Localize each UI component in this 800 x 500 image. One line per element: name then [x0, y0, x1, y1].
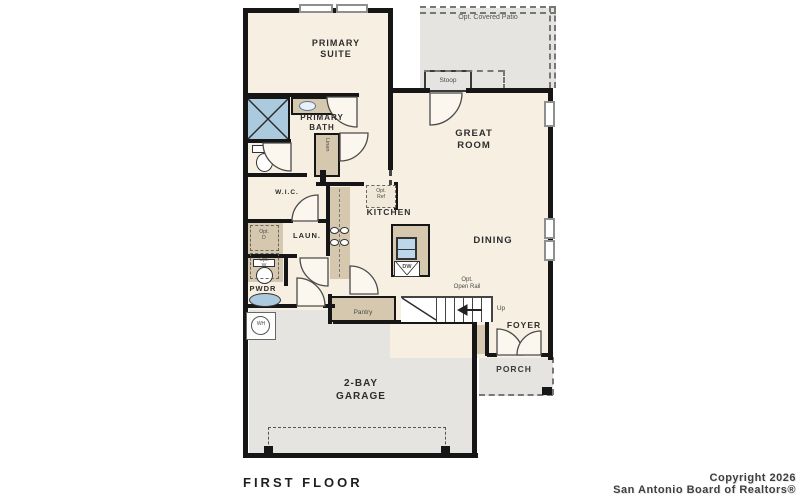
- stoop-label: Stoop: [440, 77, 457, 84]
- vanity-sink: [330, 101, 347, 111]
- patio-dashed-edge: [503, 70, 505, 90]
- floor-plan-canvas: Opt. Covered Patio Stoop PRIMARY SUITE P…: [0, 0, 800, 500]
- patio-dashed-edge: [420, 6, 556, 8]
- optional-wall-opening: [389, 170, 392, 186]
- range-burner: [340, 227, 349, 234]
- wall: [485, 322, 489, 356]
- opt-dryer-label: Opt. D: [259, 229, 268, 241]
- island-sink-divider: [398, 249, 415, 250]
- range-burner: [330, 227, 339, 234]
- opt-washer-label: Opt. W: [259, 257, 268, 269]
- wic-label: W.I.C.: [275, 189, 299, 196]
- stair-tread: [472, 296, 473, 322]
- patio-dashed-edge: [554, 6, 556, 88]
- garage-label: 2-BAY GARAGE: [336, 378, 386, 403]
- vanity-sink: [299, 101, 316, 111]
- laundry-label: LAUN.: [293, 231, 321, 240]
- window: [299, 4, 333, 13]
- linen-label: Linen: [324, 138, 330, 151]
- opt-ref-label: Opt. Ref: [376, 188, 385, 200]
- window: [544, 218, 555, 239]
- island-sink: [396, 237, 417, 260]
- toilet: [252, 145, 276, 153]
- wall: [243, 8, 248, 457]
- water-heater-label: WH: [257, 321, 265, 327]
- kitchen-label: KITCHEN: [367, 207, 412, 217]
- wall: [243, 453, 478, 458]
- stair-tread: [454, 296, 455, 322]
- counter-edge-line: [339, 189, 340, 277]
- shower: [246, 97, 290, 141]
- wall: [328, 294, 332, 324]
- wall: [284, 258, 288, 286]
- wall: [326, 186, 330, 256]
- stair-tread: [463, 296, 464, 322]
- wall: [466, 88, 553, 93]
- wall: [243, 219, 293, 223]
- patio-dashed-edge: [549, 6, 551, 88]
- primary-bath-label: PRIMARY BATH: [300, 113, 344, 132]
- wall: [243, 173, 307, 177]
- staircase: [401, 296, 493, 322]
- primary-suite-label: PRIMARY SUITE: [312, 38, 360, 60]
- porch-label: PORCH: [496, 364, 532, 374]
- porch-dashed-edge: [552, 357, 554, 395]
- window: [336, 4, 368, 13]
- stair-tread: [481, 296, 482, 322]
- toilet: [256, 153, 273, 172]
- wall: [390, 88, 430, 93]
- wall: [320, 170, 326, 184]
- porch-column: [542, 387, 552, 395]
- copyright-notice: Copyright 2026 San Antonio Board of Real…: [613, 472, 796, 496]
- foyer-label: FOYER: [507, 320, 541, 330]
- window: [544, 240, 555, 261]
- pantry-label: Pantry: [354, 309, 373, 316]
- powder-label: PWDR: [250, 284, 277, 293]
- wall: [487, 353, 497, 357]
- dishwasher-label: DW: [402, 264, 411, 270]
- patio-dashed-edge: [424, 70, 504, 72]
- great-room-label: GREAT ROOM: [455, 128, 493, 151]
- range-burner: [340, 239, 349, 246]
- stair-tread: [445, 296, 446, 322]
- open-rail-label: Opt. Open Rail: [454, 277, 481, 290]
- powder-sink: [249, 293, 281, 307]
- range-burner: [330, 239, 339, 246]
- stair-tread: [436, 296, 437, 322]
- patio-label: Opt. Covered Patio: [458, 14, 518, 21]
- garage-door-outline: [268, 427, 446, 454]
- dining-label: DINING: [473, 235, 512, 246]
- wall: [472, 322, 477, 457]
- up-label: Up: [497, 305, 505, 312]
- wall: [388, 8, 393, 170]
- foyer-wall-core: [477, 325, 485, 354]
- floor-title: FIRST FLOOR: [243, 475, 363, 490]
- window: [544, 101, 555, 127]
